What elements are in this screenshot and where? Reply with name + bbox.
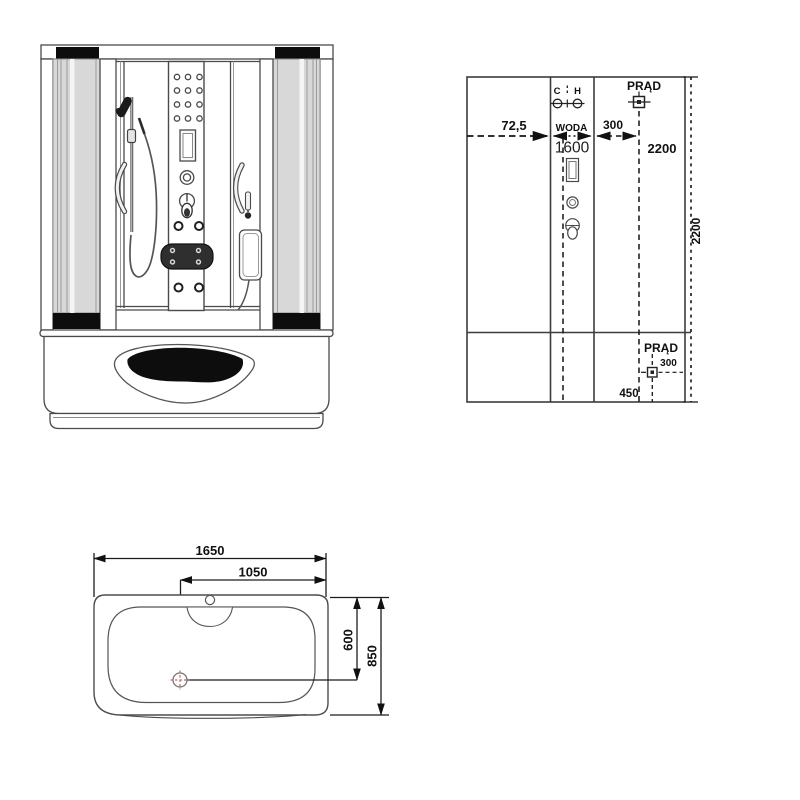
power-bottom-height-label: 300 (660, 358, 677, 369)
left-glass-panel (53, 59, 100, 313)
water-to-power-label: 300 (603, 118, 623, 132)
outlet-dot (651, 371, 655, 375)
shower-control-panel (169, 62, 205, 311)
power-height-label: 2200 (648, 141, 677, 156)
jet (197, 88, 202, 93)
jet (185, 102, 190, 107)
power-top-label: PRĄD (627, 79, 661, 93)
jet (195, 284, 203, 292)
right-glass-panel (273, 59, 320, 313)
bathtub-front (40, 330, 333, 429)
right-hose-connector (245, 192, 251, 219)
water-label: WODA (556, 123, 588, 134)
right-outer-frame (320, 59, 333, 330)
installation-dimensions-diagram: 2200 C H PRĄD 72,5 WODA 1600 30 (467, 77, 703, 402)
apron-opening (127, 348, 243, 383)
shower-hose (130, 134, 157, 277)
power-bottom-offset-label: 450 (619, 388, 638, 400)
handset-handle (139, 118, 145, 134)
left-frame-column (100, 59, 116, 330)
water-height-label: 1600 (555, 140, 590, 157)
mirror-inner (569, 162, 576, 179)
jet (174, 74, 179, 79)
jet (175, 284, 183, 292)
tub-rim (40, 330, 333, 337)
offset-left-label: 72,5 (501, 118, 526, 133)
cold-water-label: C (554, 86, 561, 97)
mixer-valve (180, 194, 195, 218)
bathtub-top-view: 1650 1050 600 850 (94, 543, 389, 718)
right-glass-top-black-band (275, 47, 320, 60)
technical-drawing-page: 2200 C H PRĄD 72,5 WODA 1600 30 (0, 0, 800, 800)
corner-shelf (240, 230, 262, 280)
drawing-svg: 2200 C H PRĄD 72,5 WODA 1600 30 (0, 0, 800, 800)
total-height-label: 2200 (689, 217, 703, 244)
left-outer-frame (41, 59, 53, 330)
jet (174, 116, 179, 121)
left-glass-bottom-black-band (53, 313, 100, 329)
knob-inner (570, 200, 576, 206)
faucet-hole (205, 595, 214, 604)
jet (197, 116, 202, 121)
drain-offset-label: 1050 (239, 565, 268, 580)
headrest (161, 244, 213, 269)
glass-highlight (70, 59, 75, 313)
mixer-lever (568, 227, 578, 239)
shower-cabin-front-view (40, 45, 333, 429)
hot-water-label: H (574, 86, 581, 97)
panel-mirror (180, 130, 196, 161)
hand-shower (116, 95, 157, 277)
power-bottom-label: PRĄD (644, 341, 678, 355)
total-length-label: 1650 (196, 543, 225, 558)
jet (197, 74, 202, 79)
tub-plinth (50, 414, 323, 429)
glass-highlight (300, 59, 305, 313)
right-glass-bottom-black-band (273, 313, 320, 329)
jet (174, 88, 179, 93)
right-hose (238, 280, 249, 310)
left-glass-top-black-band (56, 47, 99, 60)
total-width-label: 850 (365, 645, 380, 667)
rail-slider-bracket (128, 130, 136, 143)
jet (185, 88, 190, 93)
column-fixtures (566, 159, 580, 240)
right-door-handle (236, 165, 242, 211)
jet (185, 116, 190, 121)
power-outlet-bottom: PRĄD 300 450 (619, 341, 683, 402)
jet (175, 222, 183, 230)
jet (197, 102, 202, 107)
drain-depth-label: 600 (341, 629, 356, 651)
jet (195, 222, 203, 230)
jet (185, 74, 190, 79)
water-connections: C H (551, 86, 585, 108)
control-knob (180, 171, 194, 185)
jet (174, 102, 179, 107)
right-frame-column (260, 59, 273, 330)
